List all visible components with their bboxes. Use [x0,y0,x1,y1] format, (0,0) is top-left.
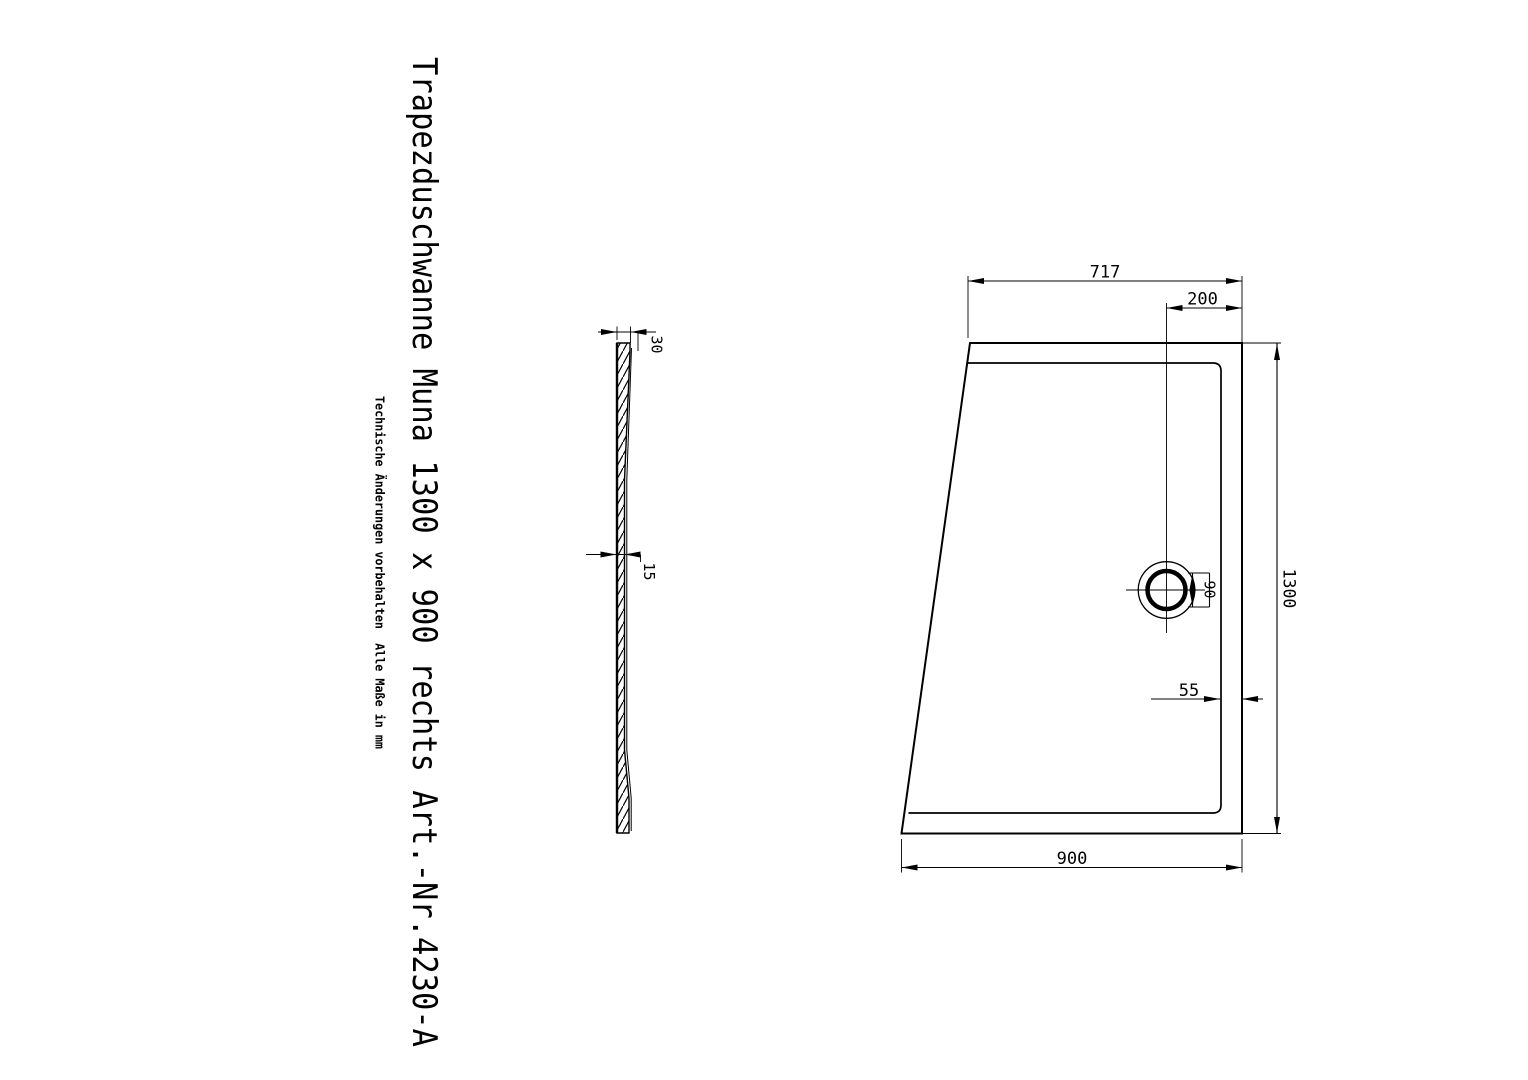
dim-label-55: 55 [1179,681,1199,701]
dim-label-30: 30 [648,335,666,353]
dim-label-200: 200 [1187,290,1218,310]
tray-inner-outline [909,363,1222,813]
tray-outer-outline [902,343,1243,834]
side-view: 30 15 [586,327,666,834]
dim-drain-offset: 200 [1167,290,1243,310]
dim-label-900: 900 [1057,849,1088,869]
cad-drawing: Trapezduschwanne Muna 1300 x 900 rechts … [0,0,1528,1080]
drain: 90 [1126,303,1219,633]
dim-rim-gap: 55 [1151,681,1263,701]
dim-label-717: 717 [1090,263,1121,283]
dim-length: 1300 [1277,344,1299,834]
dim-label-1300: 1300 [1280,569,1299,609]
dim-label-90: 90 [1201,580,1219,598]
title-block: Trapezduschwanne Muna 1300 x 900 rechts … [373,57,445,1047]
drawing-disclaimer: Technische Änderungen vorbehalten Alle M… [373,396,388,749]
dim-label-15: 15 [640,562,658,580]
top-view: 90 717 200 1300 [902,263,1299,873]
cad-sheet: Trapezduschwanne Muna 1300 x 900 rechts … [0,0,1528,1080]
dim-bottom-width: 900 [902,839,1243,873]
drawing-title: Trapezduschwanne Muna 1300 x 900 rechts … [404,57,444,1047]
